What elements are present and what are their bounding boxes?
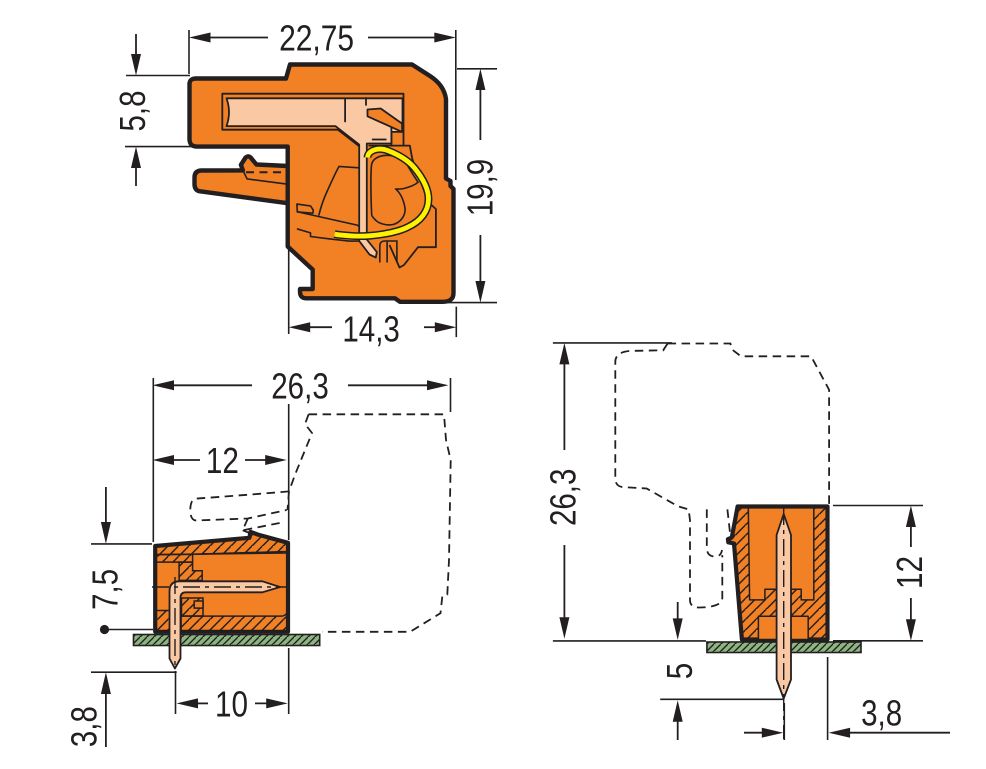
svg-text:14,3: 14,3: [342, 309, 400, 350]
svg-text:7,5: 7,5: [84, 569, 125, 610]
svg-text:5: 5: [659, 663, 700, 680]
svg-text:19,9: 19,9: [459, 159, 500, 217]
svg-text:12: 12: [889, 556, 930, 589]
svg-text:3,8: 3,8: [861, 693, 902, 734]
svg-text:10: 10: [215, 684, 248, 725]
svg-text:26,3: 26,3: [271, 366, 329, 407]
svg-text:5,8: 5,8: [112, 91, 153, 132]
svg-text:26,3: 26,3: [543, 469, 584, 527]
svg-text:22,75: 22,75: [279, 17, 354, 58]
svg-text:12: 12: [206, 440, 239, 481]
svg-text:3,8: 3,8: [64, 706, 105, 747]
